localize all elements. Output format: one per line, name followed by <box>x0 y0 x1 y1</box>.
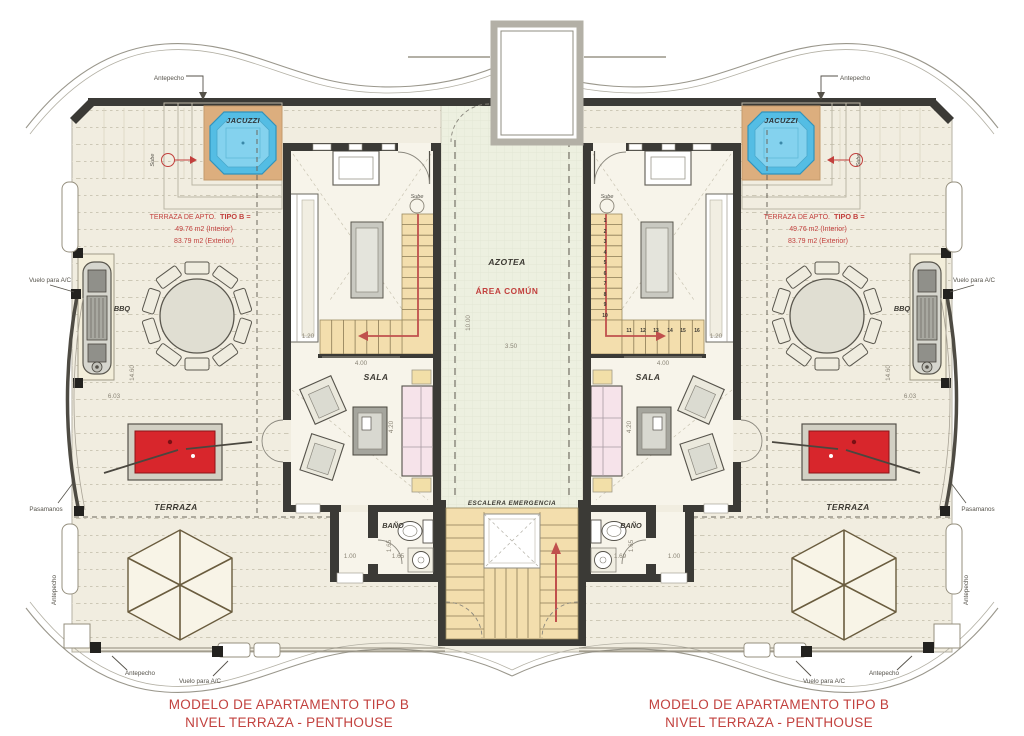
coffee-table <box>353 407 387 455</box>
footer-title-left-line1: MODELO DE APARTAMENTO TIPO B <box>169 697 409 712</box>
escalera-side-wall <box>438 500 446 646</box>
label-bano-left: BAÑO <box>382 521 404 530</box>
dim-bath-width-right: 1.69 <box>614 553 627 560</box>
label-vuelo-ac-right: Vuelo para A/C <box>953 277 996 284</box>
dim-terrace-length-right: 14.60 <box>885 365 892 381</box>
label-sala-right: SALA <box>636 372 661 382</box>
step-number: 2 <box>604 229 607 235</box>
label-azotea: AZOTEA <box>487 257 525 267</box>
label-sube-unit-right: Sube <box>601 194 614 200</box>
label-antepecho-top-left: Antepecho <box>154 75 185 82</box>
step-number: 12 <box>640 328 646 334</box>
step-number: 5 <box>604 260 607 266</box>
dim-stair-width-left: 1.20 <box>302 333 315 340</box>
footer-title-right-line2: NIVEL TERRAZA - PENTHOUSE <box>665 715 873 730</box>
emergency-stairs <box>446 508 578 639</box>
note-left-line1b: TIPO B = <box>220 212 251 221</box>
dim-sala-depth-left: 4.20 <box>388 420 395 433</box>
dim-terrace-width-right: 6.03 <box>904 393 917 400</box>
dim-bath-depth-right: 1.65 <box>628 539 635 552</box>
dim-terrace-length-left: 14.60 <box>129 365 136 381</box>
footer-title-left-line2: NIVEL TERRAZA - PENTHOUSE <box>185 715 393 730</box>
step-number: 6 <box>604 271 607 277</box>
dim-hall-width-left: 1.00 <box>344 553 357 560</box>
label-pasamanos-left: Pasamanos <box>29 506 62 513</box>
label-vuelo-ac-left: Vuelo para A/C <box>29 277 72 284</box>
sube-circle <box>410 199 424 213</box>
note-left-line1a: TERRAZA DE APTO. <box>150 214 216 221</box>
label-vuelo-ac-bottom-right: Vuelo para A/C <box>803 678 846 685</box>
label-antepecho-side-left: Antepecho <box>51 574 58 605</box>
dim-hall-width-right: 1.00 <box>668 553 681 560</box>
step-number: 11 <box>626 328 632 334</box>
step-number: 14 <box>667 328 673 334</box>
step-number: 4 <box>604 250 607 256</box>
step-number: 10 <box>602 313 608 319</box>
bbq-grill <box>73 248 114 388</box>
note-right-line3: 83.79 m2 (Exterior) <box>788 238 848 245</box>
dim-sala-width-right: 4.00 <box>657 360 670 367</box>
label-area-comun: ÁREA COMÚN <box>476 285 539 296</box>
dim-bath-width-left: 1.65 <box>392 553 405 560</box>
closet <box>289 194 318 342</box>
cabinet <box>351 222 383 298</box>
step-number: 13 <box>653 328 659 334</box>
dim-corridor-width: 3.50 <box>505 343 518 350</box>
step-number: 15 <box>680 328 686 334</box>
label-sube-terrace-left: Sube <box>150 154 156 167</box>
sink <box>408 548 433 572</box>
note-right-line1a: TERRAZA DE APTO. <box>764 214 830 221</box>
label-sube-unit-left: Sube <box>411 194 424 200</box>
outer-wall-top <box>88 98 512 106</box>
window <box>333 151 379 185</box>
sofa <box>402 386 433 476</box>
label-antepecho-bottom-right: Antepecho <box>869 670 900 677</box>
common-corridor <box>441 103 583 508</box>
elevator-shaft <box>494 24 580 142</box>
note-right-line2: 49.76 m2 (Interior) <box>789 226 847 233</box>
step-number: 8 <box>604 292 607 298</box>
dim-sala-width-left: 4.00 <box>355 360 368 367</box>
label-jacuzzi-left: JACUZZI <box>226 116 260 125</box>
label-sala-left: SALA <box>364 372 389 382</box>
label-bbq-left: BBQ <box>114 304 131 313</box>
label-vuelo-ac-bottom-left: Vuelo para A/C <box>179 678 222 685</box>
label-antepecho-side-right: Antepecho <box>963 574 970 605</box>
label-bano-right: BAÑO <box>620 521 642 530</box>
label-jacuzzi-right: JACUZZI <box>764 116 798 125</box>
dim-terrace-width-left: 6.03 <box>108 393 121 400</box>
dim-bath-depth-left: 1.65 <box>386 539 393 552</box>
label-antepecho-top-right: Antepecho <box>840 75 871 82</box>
label-escalera-emergencia: ESCALERA EMERGENCIA <box>468 500 556 507</box>
dim-corridor-length: 10.00 <box>465 315 472 331</box>
dim-stair-width-right: 1.20 <box>710 333 723 340</box>
label-antepecho-bottom-left: Antepecho <box>125 670 156 677</box>
label-terraza-left: TERRAZA <box>154 502 197 512</box>
side-table <box>412 478 431 492</box>
step-number: 16 <box>694 328 700 334</box>
note-right-line1b: TIPO B = <box>834 212 865 221</box>
step-number: 9 <box>604 302 607 308</box>
dim-sala-depth-right: 4.20 <box>626 420 633 433</box>
label-terraza-right: TERRAZA <box>826 502 869 512</box>
floor-plan-page: JACUZZI JACUZZI TERRAZA DE APTO. TIPO B … <box>0 0 1024 736</box>
label-pasamanos-right: Pasamanos <box>961 506 994 513</box>
footer-title-right-line1: MODELO DE APARTAMENTO TIPO B <box>649 697 889 712</box>
step-number: 3 <box>604 239 607 245</box>
side-table <box>412 370 431 384</box>
note-left-line2: 49.76 m2 (Interior) <box>175 226 233 233</box>
pasamanos-leader <box>58 483 73 503</box>
floor-plan-svg: JACUZZI JACUZZI TERRAZA DE APTO. TIPO B … <box>0 0 1024 736</box>
step-number: 7 <box>604 281 607 287</box>
label-bbq-right: BBQ <box>894 304 911 313</box>
step-number: 1 <box>604 218 607 224</box>
note-left-line3: 83.79 m2 (Exterior) <box>174 238 234 245</box>
label-sube-terrace-right: Sube <box>856 154 862 167</box>
